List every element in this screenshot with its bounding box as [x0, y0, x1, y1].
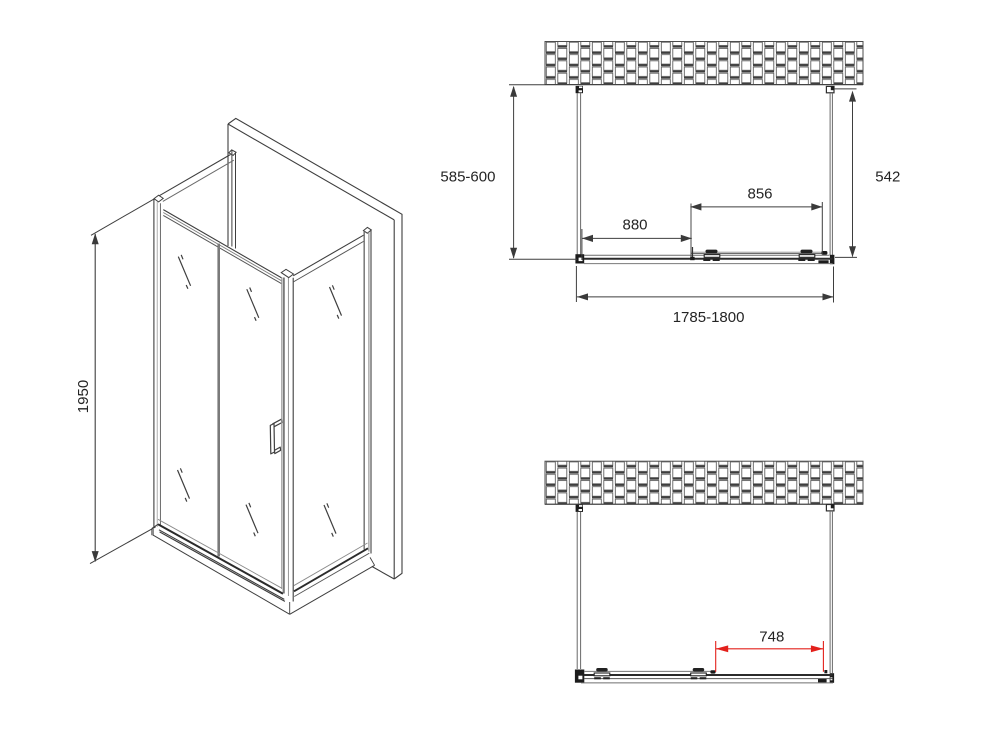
svg-text:1785-1800: 1785-1800	[673, 309, 745, 326]
svg-text:748: 748	[759, 628, 784, 645]
svg-text:585-600: 585-600	[440, 169, 495, 186]
svg-text:1950: 1950	[75, 380, 92, 413]
svg-text:880: 880	[622, 217, 647, 234]
svg-text:856: 856	[747, 186, 772, 203]
svg-text:542: 542	[875, 169, 900, 186]
